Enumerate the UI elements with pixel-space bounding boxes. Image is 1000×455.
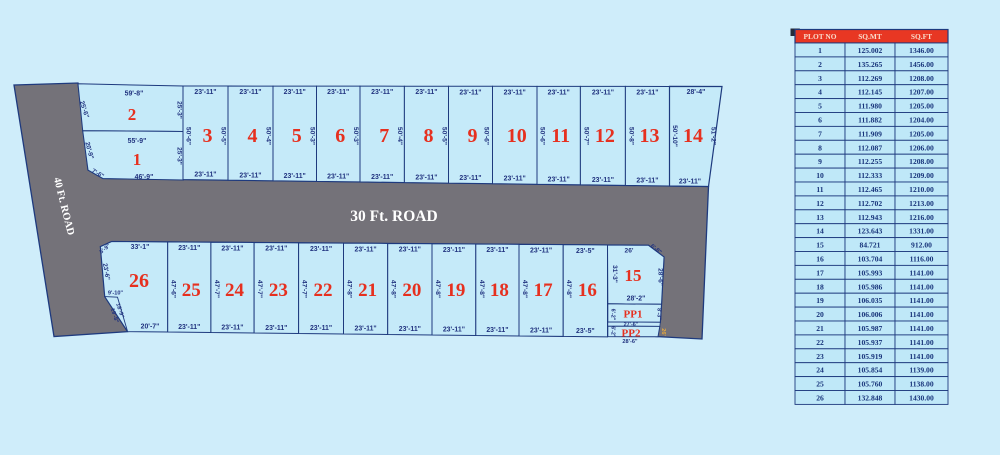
svg-text:12: 12 <box>816 199 824 208</box>
svg-text:23'-5": 23'-5" <box>576 248 595 255</box>
svg-text:23'-11": 23'-11" <box>310 246 332 253</box>
svg-text:33'-1": 33'-1" <box>131 244 150 251</box>
svg-text:13: 13 <box>816 213 824 222</box>
svg-text:17: 17 <box>534 280 554 301</box>
svg-text:8: 8 <box>423 125 433 147</box>
svg-text:23'-11": 23'-11" <box>265 246 287 253</box>
svg-text:23'-11": 23'-11" <box>371 89 393 96</box>
svg-text:20'-7": 20'-7" <box>141 324 160 331</box>
svg-text:16: 16 <box>578 280 597 301</box>
svg-text:112.087: 112.087 <box>858 143 882 152</box>
svg-text:1141.00: 1141.00 <box>909 296 933 305</box>
svg-text:21: 21 <box>816 324 824 333</box>
svg-text:2: 2 <box>128 105 137 124</box>
svg-text:5: 5 <box>292 125 302 147</box>
svg-text:25'-3": 25'-3" <box>176 101 183 119</box>
svg-text:23'-11": 23'-11" <box>459 89 481 96</box>
svg-text:SQ.MT: SQ.MT <box>858 32 882 41</box>
svg-text:47'-7": 47'-7" <box>256 280 263 298</box>
svg-text:1: 1 <box>133 150 142 169</box>
svg-text:1141.00: 1141.00 <box>909 268 933 277</box>
svg-text:105.993: 105.993 <box>858 268 883 277</box>
svg-text:105.937: 105.937 <box>858 338 883 347</box>
svg-text:1204.00: 1204.00 <box>909 116 934 125</box>
svg-text:84.721: 84.721 <box>860 241 881 250</box>
svg-text:123.643: 123.643 <box>858 227 883 236</box>
svg-text:1216.00: 1216.00 <box>909 213 934 222</box>
svg-text:PP1: PP1 <box>624 309 643 321</box>
svg-text:16: 16 <box>816 255 824 264</box>
svg-text:8'-3": 8'-3" <box>656 308 662 320</box>
svg-text:23'-11": 23'-11" <box>194 89 216 96</box>
svg-text:1141.00: 1141.00 <box>909 310 933 319</box>
svg-text:1213.00: 1213.00 <box>909 199 934 208</box>
svg-text:23'-11": 23'-11" <box>636 177 658 184</box>
svg-text:111.909: 111.909 <box>858 129 882 138</box>
svg-text:19: 19 <box>446 280 465 301</box>
svg-text:23'-11": 23'-11" <box>265 325 287 332</box>
svg-text:10: 10 <box>816 171 824 180</box>
svg-text:111.980: 111.980 <box>858 102 882 111</box>
svg-text:23'-11": 23'-11" <box>459 175 481 182</box>
svg-text:23'-11": 23'-11" <box>239 89 261 96</box>
svg-text:47'-8": 47'-8" <box>565 280 572 298</box>
svg-text:25: 25 <box>182 280 201 301</box>
svg-text:47'-8": 47'-8" <box>346 280 353 298</box>
svg-text:1210.00: 1210.00 <box>909 185 934 194</box>
svg-text:25'-3": 25'-3" <box>176 147 183 165</box>
svg-text:23'-11": 23'-11" <box>327 173 349 180</box>
svg-text:105.760: 105.760 <box>858 380 883 389</box>
svg-text:55'-9": 55'-9" <box>128 138 147 145</box>
svg-text:23'-11": 23'-11" <box>399 247 421 254</box>
svg-text:1208.00: 1208.00 <box>909 74 934 83</box>
svg-text:50'-6": 50'-6" <box>539 127 546 145</box>
svg-text:23'-11": 23'-11" <box>371 174 393 181</box>
svg-text:1206.00: 1206.00 <box>909 143 934 152</box>
svg-text:112.255: 112.255 <box>858 157 882 166</box>
svg-text:23'-11": 23'-11" <box>355 246 377 253</box>
svg-text:23'-11": 23'-11" <box>592 177 614 184</box>
svg-text:23'-11": 23'-11" <box>592 89 614 96</box>
svg-text:50'-5": 50'-5" <box>220 127 227 145</box>
svg-text:4: 4 <box>248 125 258 147</box>
svg-text:105.919: 105.919 <box>858 352 883 361</box>
svg-text:18: 18 <box>490 280 509 301</box>
svg-text:20: 20 <box>816 310 824 319</box>
svg-text:19: 19 <box>816 296 824 305</box>
svg-text:1205.00: 1205.00 <box>909 102 934 111</box>
svg-text:23: 23 <box>816 352 824 361</box>
svg-text:3: 3 <box>818 74 822 83</box>
svg-text:132.848: 132.848 <box>858 394 883 403</box>
svg-text:105.987: 105.987 <box>858 324 883 333</box>
svg-text:112.269: 112.269 <box>858 74 882 83</box>
svg-text:47'-8": 47'-8" <box>434 280 441 298</box>
svg-text:1207.00: 1207.00 <box>909 88 934 97</box>
svg-text:105.854: 105.854 <box>858 366 883 375</box>
svg-text:22: 22 <box>816 338 824 347</box>
svg-text:1141.00: 1141.00 <box>909 282 933 291</box>
svg-text:112.145: 112.145 <box>858 88 882 97</box>
svg-text:5: 5 <box>818 102 822 111</box>
svg-text:9: 9 <box>468 125 478 147</box>
svg-text:21: 21 <box>358 280 377 301</box>
svg-text:47'-8": 47'-8" <box>521 280 528 298</box>
svg-text:23'-11": 23'-11" <box>221 324 243 331</box>
svg-text:23'-11": 23'-11" <box>239 172 261 179</box>
svg-text:1141.00: 1141.00 <box>909 338 933 347</box>
svg-text:50'-8": 50'-8" <box>628 127 635 145</box>
svg-text:SQ.FT: SQ.FT <box>911 32 932 41</box>
svg-text:PP2: PP2 <box>622 328 641 340</box>
svg-text:51'-2": 51'-2" <box>710 127 717 145</box>
svg-text:112.943: 112.943 <box>858 213 882 222</box>
svg-text:1: 1 <box>818 46 822 55</box>
svg-text:10: 10 <box>507 125 527 147</box>
svg-text:9: 9 <box>818 157 822 166</box>
svg-text:112.465: 112.465 <box>858 185 882 194</box>
svg-text:50'-6": 50'-6" <box>185 127 192 145</box>
svg-text:1331.00: 1331.00 <box>909 227 934 236</box>
svg-text:23'-11": 23'-11" <box>548 89 570 96</box>
svg-text:23'-11": 23'-11" <box>194 172 216 179</box>
svg-text:103.704: 103.704 <box>858 255 883 264</box>
svg-text:105.986: 105.986 <box>858 282 883 291</box>
svg-text:23'-11": 23'-11" <box>504 89 526 96</box>
svg-text:23'-11": 23'-11" <box>443 327 465 334</box>
svg-text:1141.00: 1141.00 <box>909 352 933 361</box>
svg-text:PLOT NO: PLOT NO <box>804 32 837 41</box>
svg-text:23'-11": 23'-11" <box>679 179 701 186</box>
svg-text:7: 7 <box>818 129 822 138</box>
svg-text:11: 11 <box>551 125 570 147</box>
svg-text:8: 8 <box>818 143 822 152</box>
svg-text:23'-11": 23'-11" <box>415 175 437 182</box>
svg-text:23'-11": 23'-11" <box>327 89 349 96</box>
svg-text:912.00: 912.00 <box>911 241 932 250</box>
svg-text:4: 4 <box>818 88 822 97</box>
svg-text:135.265: 135.265 <box>858 60 883 69</box>
svg-text:23'-11": 23'-11" <box>530 328 552 335</box>
svg-text:47'-7": 47'-7" <box>301 280 308 298</box>
svg-text:26: 26 <box>816 394 824 403</box>
svg-text:23'-11": 23'-11" <box>399 326 421 333</box>
svg-text:30 Ft. ROAD: 30 Ft. ROAD <box>350 208 437 225</box>
svg-text:25: 25 <box>816 380 824 389</box>
svg-text:6: 6 <box>818 116 822 125</box>
svg-text:106.035: 106.035 <box>858 296 883 305</box>
svg-text:28'-6": 28'-6" <box>657 268 664 286</box>
svg-text:59'-8": 59'-8" <box>125 91 144 98</box>
svg-text:50'-10": 50'-10" <box>671 125 678 147</box>
svg-text:47'-8": 47'-8" <box>390 280 397 298</box>
svg-text:1209.00: 1209.00 <box>909 171 934 180</box>
svg-text:9'-10": 9'-10" <box>108 291 124 297</box>
svg-text:1139.00: 1139.00 <box>909 366 933 375</box>
svg-text:22: 22 <box>314 280 333 301</box>
svg-text:6'-2": 6'-2" <box>610 326 616 338</box>
svg-text:1456.00: 1456.00 <box>909 60 934 69</box>
svg-text:1346.00: 1346.00 <box>909 46 934 55</box>
svg-text:23'-11": 23'-11" <box>486 247 508 254</box>
svg-text:1430.00: 1430.00 <box>909 394 934 403</box>
svg-text:23'-11": 23'-11" <box>221 245 243 252</box>
svg-text:24: 24 <box>225 280 245 301</box>
svg-text:1208.00: 1208.00 <box>909 157 934 166</box>
svg-text:1205.00: 1205.00 <box>909 129 934 138</box>
svg-text:3: 3 <box>203 125 213 147</box>
svg-text:47'-6": 47'-6" <box>170 280 177 298</box>
svg-text:1116.00: 1116.00 <box>910 255 934 264</box>
svg-text:50'-4": 50'-4" <box>265 127 272 145</box>
svg-text:15: 15 <box>625 266 642 285</box>
svg-text:13: 13 <box>639 125 659 147</box>
svg-text:50'-6": 50'-6" <box>483 127 490 145</box>
svg-text:23'-11": 23'-11" <box>443 247 465 254</box>
svg-text:23: 23 <box>269 280 288 301</box>
svg-text:23'-11": 23'-11" <box>355 326 377 333</box>
svg-text:106.006: 106.006 <box>858 310 883 319</box>
svg-text:23'-11": 23'-11" <box>530 248 552 255</box>
svg-text:50'-4": 50'-4" <box>396 127 403 145</box>
svg-text:46'-9": 46'-9" <box>135 174 154 181</box>
svg-text:24: 24 <box>816 366 824 375</box>
svg-text:17: 17 <box>816 268 824 277</box>
svg-text:47'-8": 47'-8" <box>478 280 485 298</box>
svg-text:125.002: 125.002 <box>858 46 883 55</box>
svg-text:26': 26' <box>625 248 634 255</box>
svg-text:2: 2 <box>818 60 822 69</box>
svg-text:23'-5": 23'-5" <box>576 328 595 335</box>
svg-text:31'-3": 31'-3" <box>611 265 618 283</box>
svg-text:7: 7 <box>379 125 389 147</box>
svg-text:23'-11": 23'-11" <box>178 245 200 252</box>
svg-text:20: 20 <box>402 280 421 301</box>
svg-text:50'-5": 50'-5" <box>441 127 448 145</box>
svg-text:23'-11": 23'-11" <box>548 176 570 183</box>
svg-text:23'-11": 23'-11" <box>310 325 332 332</box>
svg-text:23'-11": 23'-11" <box>284 173 306 180</box>
svg-text:6'-2": 6'-2" <box>610 309 616 321</box>
svg-text:50'-3": 50'-3" <box>309 127 316 145</box>
svg-text:1141.00: 1141.00 <box>909 324 933 333</box>
svg-text:23'-11": 23'-11" <box>284 89 306 96</box>
svg-text:111.882: 111.882 <box>858 116 882 125</box>
svg-text:112.702: 112.702 <box>858 199 882 208</box>
svg-text:14: 14 <box>683 125 703 147</box>
svg-text:15: 15 <box>816 241 824 250</box>
svg-text:28'-2": 28'-2" <box>627 296 646 303</box>
svg-text:18: 18 <box>816 282 824 291</box>
svg-text:14: 14 <box>816 227 824 236</box>
svg-text:23'-11": 23'-11" <box>415 89 437 96</box>
svg-text:50'-3": 50'-3" <box>352 127 359 145</box>
svg-text:23'-11": 23'-11" <box>636 89 658 96</box>
svg-text:26': 26' <box>660 328 666 336</box>
svg-text:6: 6 <box>335 125 345 147</box>
svg-text:23'-11": 23'-11" <box>504 176 526 183</box>
svg-text:28'-6": 28'-6" <box>622 339 638 345</box>
svg-text:11: 11 <box>816 185 823 194</box>
svg-text:26: 26 <box>129 270 149 292</box>
svg-text:47'-7": 47'-7" <box>213 280 220 298</box>
svg-text:1138.00: 1138.00 <box>909 380 933 389</box>
svg-text:112.333: 112.333 <box>858 171 882 180</box>
svg-text:50'-7": 50'-7" <box>583 127 590 145</box>
svg-text:23'-11": 23'-11" <box>486 327 508 334</box>
svg-text:12: 12 <box>595 125 615 147</box>
svg-text:28'-4": 28'-4" <box>687 89 706 96</box>
svg-text:23'-11": 23'-11" <box>178 324 200 331</box>
